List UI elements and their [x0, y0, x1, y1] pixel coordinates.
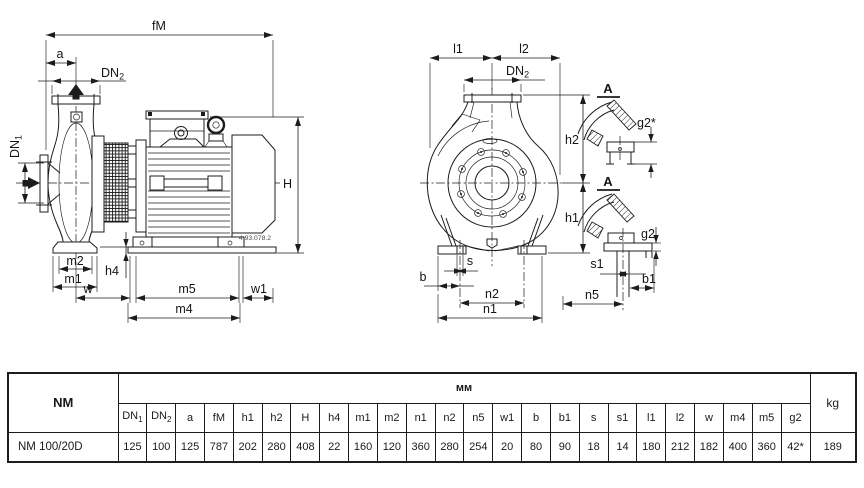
dim-label-m5: m5	[178, 282, 195, 296]
col-label: H	[301, 412, 309, 424]
value-m2: 120	[377, 432, 406, 462]
col-label: fM	[213, 412, 225, 424]
dim-label-dn2-front: DN2	[506, 64, 529, 80]
dim-label-n5: n5	[585, 288, 599, 302]
value-m4: 400	[723, 432, 752, 462]
dim-label-h: H	[283, 177, 292, 191]
value-n1: 360	[406, 432, 435, 462]
dn2-base: DN	[101, 66, 119, 80]
technical-drawing: 4.93.078.2 fM a DN2	[0, 0, 864, 368]
col-l2: l2	[666, 403, 695, 432]
col-h2: h2	[262, 403, 291, 432]
value-h4: 22	[320, 432, 349, 462]
value-b: 80	[522, 432, 551, 462]
fan-cover	[232, 135, 275, 233]
rib-section-hatch	[607, 194, 634, 222]
terminal-box	[146, 111, 208, 147]
col-label: a	[187, 412, 193, 424]
col-m5: m5	[752, 403, 781, 432]
dim-label-m1: m1	[64, 272, 81, 286]
col-g2: g2	[781, 403, 810, 432]
col-w1: w1	[493, 403, 522, 432]
dim-label-g2-star: g2*	[637, 116, 656, 130]
col-label: DN	[122, 410, 138, 422]
dn2-base: DN	[506, 64, 524, 78]
dim-label-l2: l2	[519, 42, 529, 56]
dim-label-s: s	[467, 254, 473, 268]
dim-label-m2: m2	[66, 254, 83, 268]
section-detail-bottom: A g2 s1 b1 n5	[563, 174, 661, 310]
col-label: h2	[270, 412, 282, 424]
foot-plate-bottom-section	[604, 243, 652, 251]
col-label: w1	[500, 412, 514, 424]
drawing-ref-code: 4.93.078.2	[239, 235, 271, 242]
section-a-bottom-title: A	[603, 174, 613, 189]
col-label: m4	[730, 412, 745, 424]
value-s: 18	[579, 432, 608, 462]
col-n5: n5	[464, 403, 493, 432]
front-view-dimensions: l1 l2 DN2 h2 h1 s	[420, 42, 590, 323]
dim-label-dn2-side: DN2	[101, 66, 124, 82]
dimensions-table: NM мм kg DN1 DN2 a fM h1 h2 H h4 m1 m2 n…	[7, 372, 857, 463]
col-a: a	[176, 403, 205, 432]
dn2-sub: 2	[119, 72, 124, 82]
column-header-row: DN1 DN2 a fM h1 h2 H h4 m1 m2 n1 n2 n5 w…	[8, 403, 856, 432]
dim-label-g2: g2	[641, 227, 655, 241]
col-label: l1	[647, 412, 656, 424]
value-fm: 787	[204, 432, 233, 462]
col-label: n2	[443, 412, 455, 424]
front-view-drawing: l1 l2 DN2 h2 h1 s	[420, 42, 590, 323]
col-label: n5	[472, 412, 484, 424]
dim-label-a: a	[57, 47, 64, 61]
motor: 4.93.078.2	[128, 111, 276, 253]
col-label: b	[533, 412, 539, 424]
value-g2: 42*	[781, 432, 810, 462]
col-label: s1	[617, 412, 629, 424]
dim-label-h4: h4	[105, 264, 119, 278]
col-dn1: DN1	[118, 403, 147, 432]
col-label: m2	[384, 412, 399, 424]
dim-label-fm: fM	[152, 19, 166, 33]
gauge-connection	[452, 114, 480, 132]
col-label: h1	[242, 412, 254, 424]
dn2-sub: 2	[524, 70, 529, 80]
datasheet-page: 4.93.078.2 fM a DN2	[0, 0, 864, 488]
col-m2: m2	[377, 403, 406, 432]
suction-flow-arrow	[28, 177, 40, 189]
value-l2: 212	[666, 432, 695, 462]
dim-label-w: w	[82, 282, 93, 296]
col-label: DN	[151, 410, 167, 422]
col-n2: n2	[435, 403, 464, 432]
dim-label-b1: b1	[642, 272, 656, 286]
dim-label-m4: m4	[175, 302, 192, 316]
value-dn1: 125	[118, 432, 147, 462]
unit-header-mm: мм	[118, 373, 810, 403]
col-h: H	[291, 403, 320, 432]
foot-pad-bottom-section	[608, 233, 634, 243]
value-l1: 180	[637, 432, 666, 462]
value-h2: 280	[262, 432, 291, 462]
value-a: 125	[176, 432, 205, 462]
dim-label-n1: n1	[483, 302, 497, 316]
value-m1: 160	[349, 432, 378, 462]
rib-section-hatch	[607, 100, 636, 130]
col-sub: 1	[138, 416, 142, 425]
col-l1: l1	[637, 403, 666, 432]
side-view-drawing: 4.93.078.2 fM a DN2	[8, 19, 304, 323]
dim-label-h2: h2	[565, 133, 579, 147]
dim-label-s1: s1	[590, 257, 603, 271]
col-m4: m4	[723, 403, 752, 432]
col-fm: fM	[204, 403, 233, 432]
col-s: s	[579, 403, 608, 432]
value-dn2: 100	[147, 432, 176, 462]
dim-label-b: b	[420, 270, 427, 284]
section-detail-top: A g2*	[578, 81, 657, 178]
section-a-top-title: A	[603, 81, 613, 96]
col-label: w	[705, 412, 713, 424]
dim-label-n2: n2	[485, 287, 499, 301]
col-label: b1	[559, 412, 571, 424]
col-n1: n1	[406, 403, 435, 432]
dim-label-h1: h1	[565, 211, 579, 225]
col-b: b	[522, 403, 551, 432]
dn1-base: DN	[8, 140, 22, 158]
col-label: s	[591, 412, 597, 424]
col-label: g2	[789, 412, 801, 424]
col-dn2: DN2	[147, 403, 176, 432]
pump-casing-front	[427, 93, 558, 254]
value-kg: 189	[810, 432, 856, 462]
dim-label-dn1: DN1	[8, 135, 24, 158]
col-w: w	[695, 403, 724, 432]
col-label: m1	[355, 412, 370, 424]
col-sub: 2	[167, 416, 171, 425]
value-s1: 14	[608, 432, 637, 462]
lifting-eye-bolt	[205, 117, 227, 147]
weight-header-kg: kg	[810, 373, 856, 432]
model-name-cell: NM 100/20D	[8, 432, 118, 462]
col-label: n1	[415, 412, 427, 424]
dim-label-l1: l1	[453, 42, 463, 56]
col-label: l2	[676, 412, 685, 424]
col-label: m5	[759, 412, 774, 424]
value-h: 408	[291, 432, 320, 462]
col-h1: h1	[233, 403, 262, 432]
value-w1: 20	[493, 432, 522, 462]
col-h4: h4	[320, 403, 349, 432]
table-row: NM 100/20D 125 100 125 787 202 280 408 2…	[8, 432, 856, 462]
value-w: 182	[695, 432, 724, 462]
col-label: h4	[328, 412, 340, 424]
dn1-sub: 1	[14, 135, 24, 140]
dim-label-w1: w1	[250, 282, 267, 296]
series-header: NM	[8, 373, 118, 432]
bearing-bracket	[92, 136, 136, 232]
col-m1: m1	[349, 403, 378, 432]
value-n2: 280	[435, 432, 464, 462]
value-b1: 90	[550, 432, 579, 462]
value-m5: 360	[752, 432, 781, 462]
col-s1: s1	[608, 403, 637, 432]
col-b1: b1	[550, 403, 579, 432]
value-h1: 202	[233, 432, 262, 462]
value-n5: 254	[464, 432, 493, 462]
